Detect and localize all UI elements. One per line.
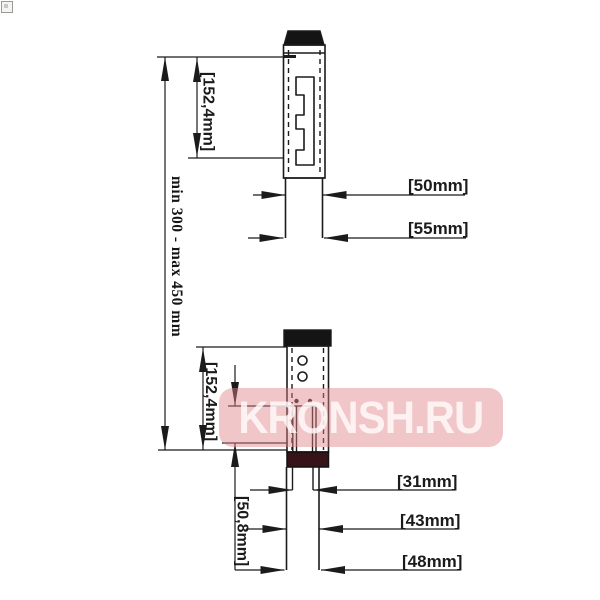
lower-tube-assembly	[284, 330, 331, 570]
technical-drawing-page: min 300 - max 450 mm [152,4mm] [50mm] [5…	[0, 0, 600, 600]
lower-tube-diameter-label: [43mm]	[400, 511, 460, 530]
watermark-badge: KRONSH.RU	[219, 388, 503, 447]
mounting-slot-profile	[296, 77, 314, 165]
upper-end-cap	[284, 31, 324, 45]
pole-mount-dimension-diagram: min 300 - max 450 mm [152,4mm] [50mm] [5…	[0, 0, 600, 600]
clamp-collar-band	[287, 452, 329, 467]
lower-inner-tube-diameter-label: [31mm]	[397, 472, 457, 491]
overall-height-range-label: min 300 - max 450 mm	[168, 176, 185, 337]
upper-tube-diameter-label: [50mm]	[408, 176, 468, 195]
upper-tube-assembly	[283, 31, 325, 238]
mounting-hole	[298, 356, 307, 365]
lower-insert-depth-label: [50,8mm]	[234, 496, 251, 566]
lower-slot-length-label: [152,4mm]	[202, 362, 219, 441]
mounting-hole	[298, 372, 307, 381]
lower-adapter-diameter-label: [48mm]	[402, 552, 462, 571]
watermark-text: KRONSH.RU	[238, 395, 483, 440]
upper-slot-length-label: [152,4mm]	[200, 72, 217, 151]
upper-tube-outer-diameter-label: [55mm]	[408, 219, 468, 238]
lower-end-cap	[284, 330, 331, 346]
